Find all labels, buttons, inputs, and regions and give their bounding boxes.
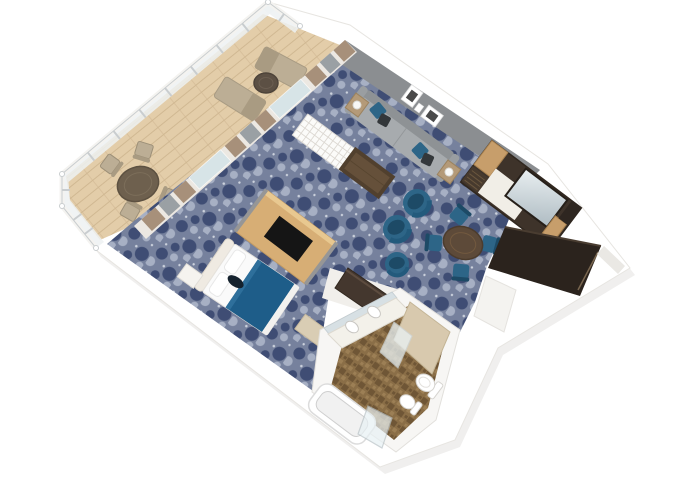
railing-corner-post bbox=[298, 24, 303, 29]
floor-plan-rendering bbox=[0, 0, 680, 486]
railing-corner-post bbox=[60, 172, 65, 177]
railing-corner-post bbox=[266, 0, 271, 5]
railing-corner-post bbox=[94, 246, 99, 251]
floor-plan-stage bbox=[0, 0, 680, 486]
railing-corner-post bbox=[60, 204, 65, 209]
dining-chair bbox=[424, 233, 443, 252]
dining-chair bbox=[451, 263, 470, 282]
small-round-side-table bbox=[254, 73, 278, 93]
